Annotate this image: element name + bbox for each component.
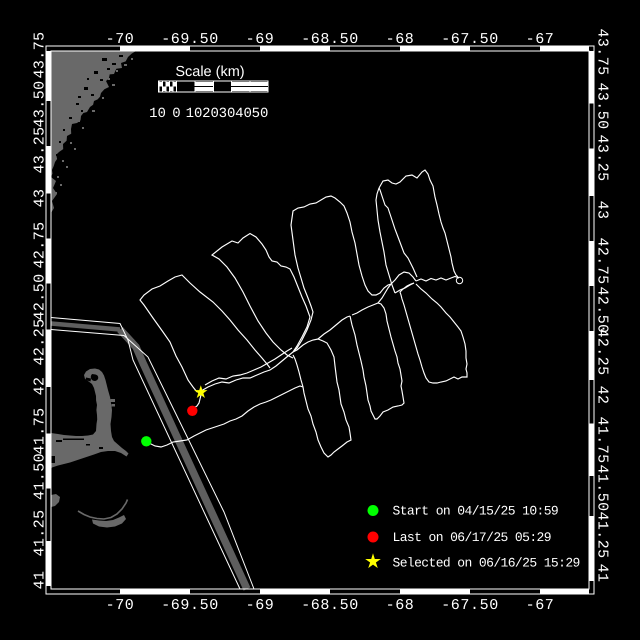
- svg-text:42: 42: [594, 386, 611, 405]
- svg-text:-69: -69: [246, 597, 275, 614]
- svg-text:-69.50: -69.50: [161, 31, 219, 48]
- svg-text:41.50: 41.50: [32, 453, 49, 500]
- svg-text:41: 41: [594, 564, 611, 583]
- svg-text:Selected on 06/16/25 15:29: Selected on 06/16/25 15:29: [393, 556, 580, 571]
- svg-text:0: 0: [172, 106, 180, 122]
- svg-text:42.25: 42.25: [32, 318, 49, 365]
- svg-text:42.75: 42.75: [32, 221, 49, 268]
- svg-text:-68.50: -68.50: [301, 597, 359, 614]
- svg-text:-69: -69: [246, 31, 275, 48]
- svg-text:41.75: 41.75: [32, 407, 49, 454]
- svg-text:41.25: 41.25: [32, 509, 49, 556]
- svg-text:43.50: 43.50: [594, 82, 611, 129]
- svg-text:-68: -68: [386, 597, 415, 614]
- svg-text:Scale (km): Scale (km): [175, 64, 244, 80]
- svg-text:-68: -68: [386, 31, 415, 48]
- svg-text:-70: -70: [106, 597, 135, 614]
- svg-text:43.75: 43.75: [594, 28, 611, 75]
- svg-text:-69.50: -69.50: [161, 597, 219, 614]
- svg-text:43.25: 43.25: [32, 126, 49, 173]
- svg-text:43.25: 43.25: [594, 134, 611, 181]
- svg-text:30: 30: [219, 106, 236, 122]
- svg-text:42.25: 42.25: [594, 328, 611, 375]
- svg-text:-67.50: -67.50: [441, 31, 499, 48]
- svg-text:43: 43: [32, 189, 49, 208]
- svg-text:-70: -70: [106, 31, 135, 48]
- svg-text:42: 42: [32, 377, 49, 396]
- svg-text:41.25: 41.25: [594, 511, 611, 558]
- svg-text:10: 10: [149, 106, 166, 122]
- svg-text:-67.50: -67.50: [441, 597, 499, 614]
- svg-text:50: 50: [252, 106, 269, 122]
- svg-text:-67: -67: [526, 597, 555, 614]
- svg-text:40: 40: [235, 106, 252, 122]
- svg-text:41.75: 41.75: [594, 416, 611, 463]
- svg-text:10: 10: [186, 106, 203, 122]
- svg-text:41.50: 41.50: [594, 464, 611, 511]
- svg-text:Last on 06/17/25 05:29: Last on 06/17/25 05:29: [393, 530, 551, 545]
- svg-text:42.50: 42.50: [594, 286, 611, 333]
- svg-text:43: 43: [594, 201, 611, 220]
- svg-text:41: 41: [32, 571, 49, 590]
- svg-text:43.50: 43.50: [32, 80, 49, 127]
- svg-text:42.75: 42.75: [594, 237, 611, 284]
- svg-text:43.75: 43.75: [32, 31, 49, 78]
- svg-text:-67: -67: [526, 31, 555, 48]
- svg-text:20: 20: [202, 106, 219, 122]
- svg-text:-68.50: -68.50: [301, 31, 359, 48]
- svg-text:Start on 04/15/25 10:59: Start on 04/15/25 10:59: [393, 504, 559, 519]
- svg-text:42.50: 42.50: [32, 273, 49, 320]
